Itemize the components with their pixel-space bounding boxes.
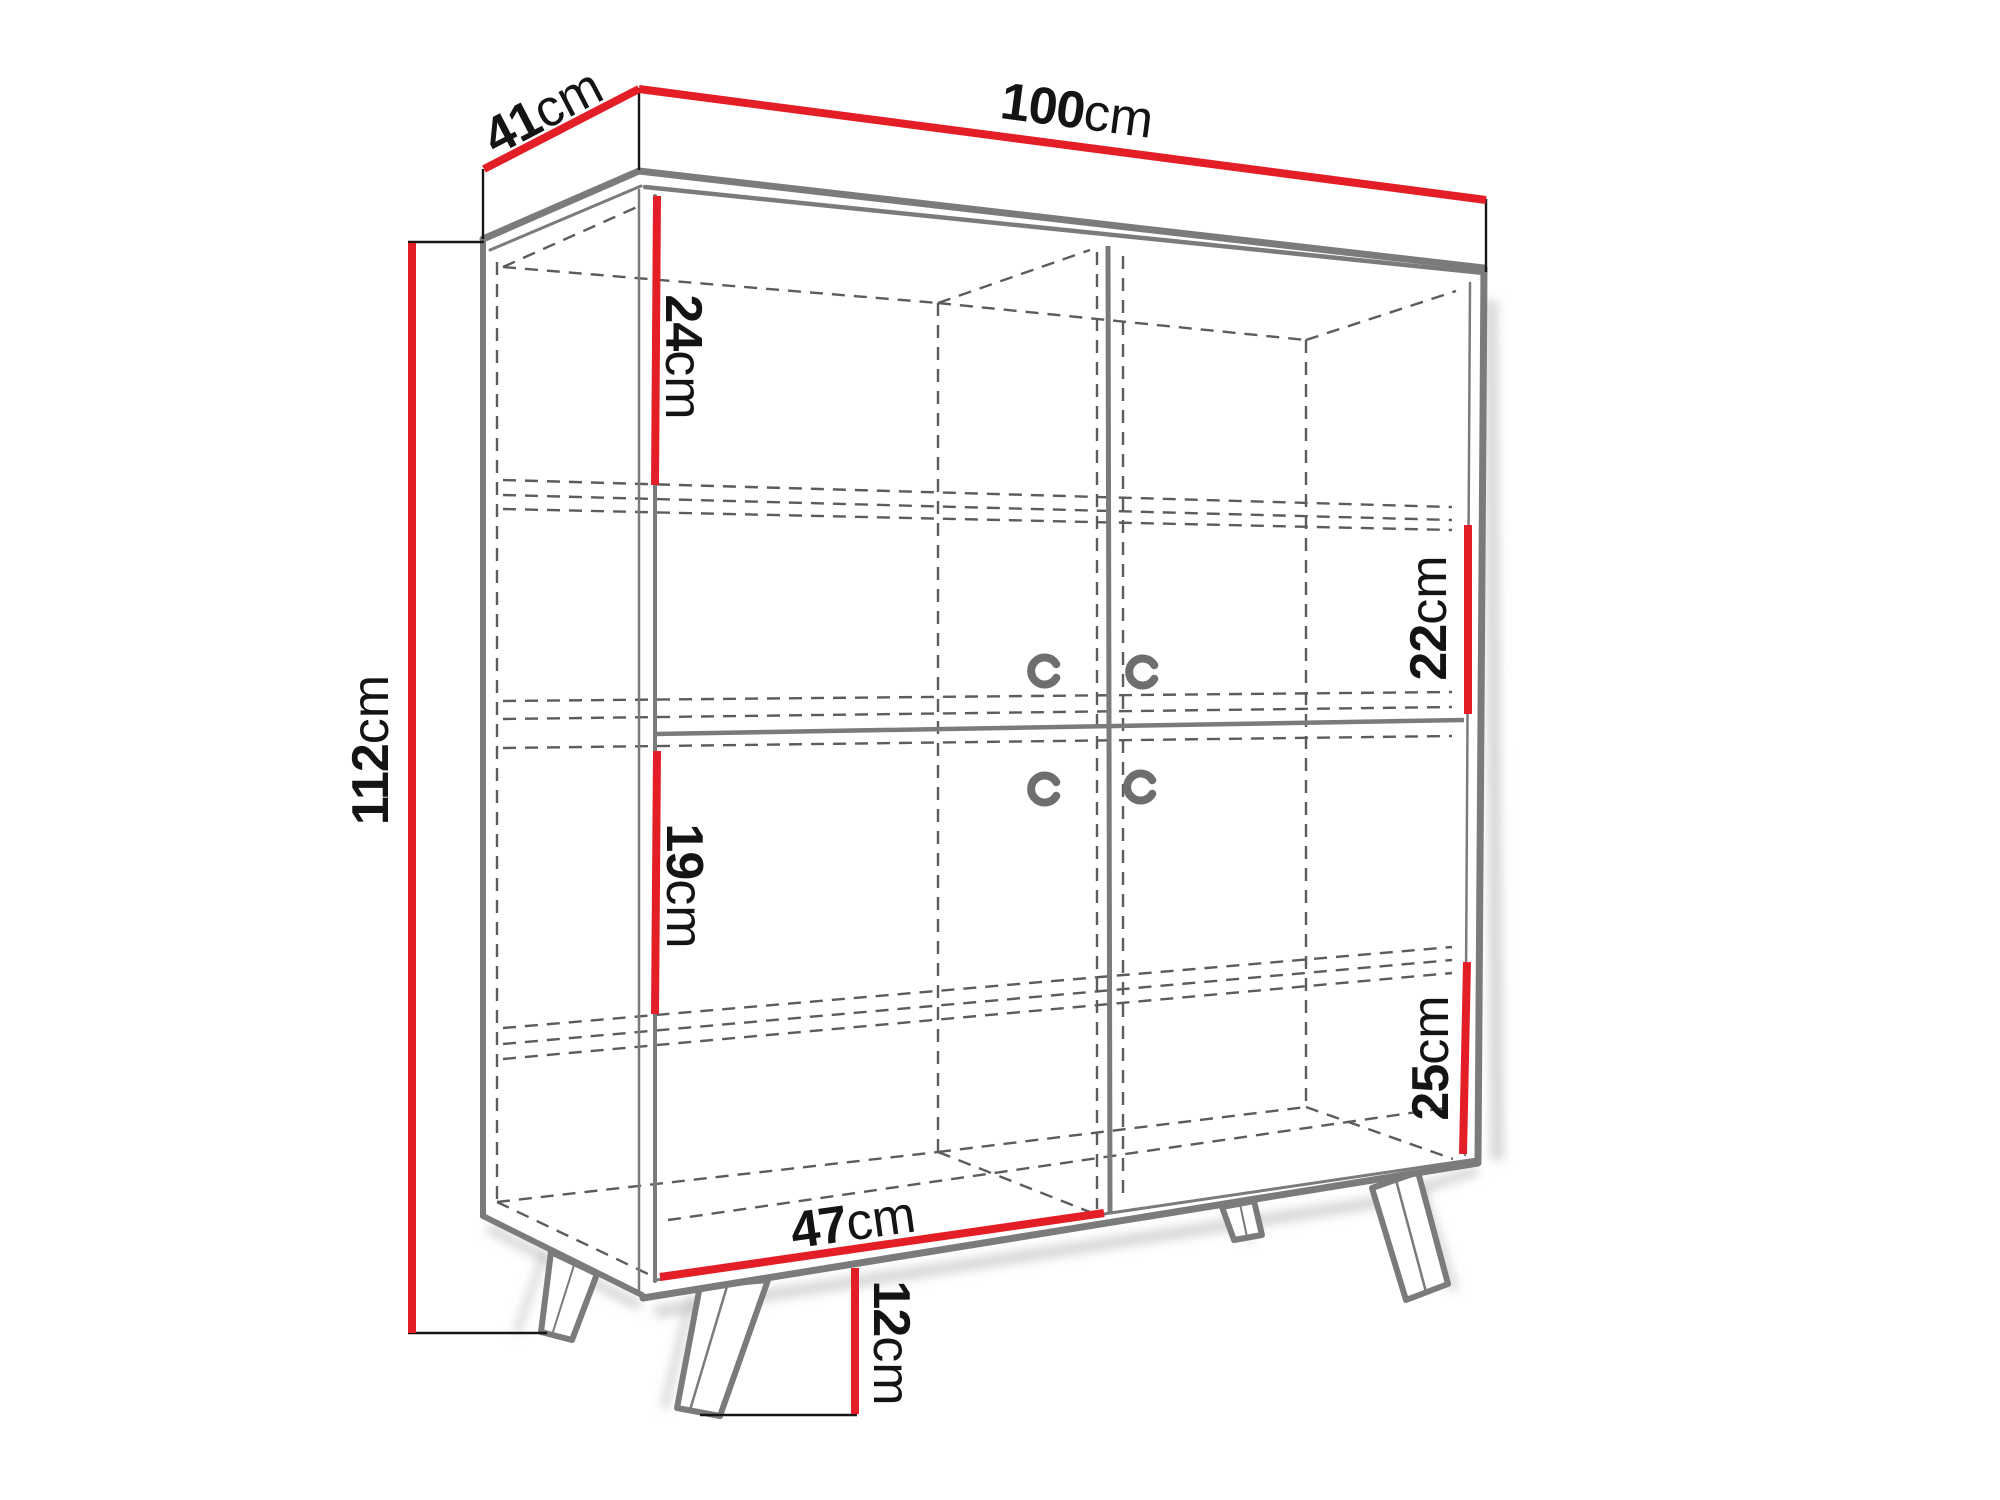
- cabinet-diagram-canvas: 41cm 100cm 112cm 24cm 22cm 19cm 25cm 47c…: [0, 0, 2000, 1500]
- center-divider: [1108, 246, 1110, 1212]
- dimension-value: 100: [997, 72, 1088, 140]
- top-left-compartment-label: 24cm: [654, 294, 712, 419]
- dimension-unit: cm: [1402, 995, 1460, 1064]
- dimension-value: 47: [787, 1195, 850, 1260]
- dimension-unit: cm: [342, 675, 400, 744]
- dimension-value: 112: [342, 744, 400, 825]
- dimension-unit: cm: [654, 350, 712, 419]
- cabinet-body: [483, 171, 1484, 1298]
- dimension-value: 24: [654, 294, 712, 351]
- height-dimension-label: 112cm: [342, 675, 400, 825]
- dimension-unit: cm: [862, 1336, 920, 1405]
- leg-height-label: 12cm: [862, 1280, 920, 1405]
- lower-right-compartment-label: 25cm: [1402, 995, 1460, 1120]
- furniture-dimension-diagram: 41cm 100cm 112cm 24cm 22cm 19cm 25cm 47c…: [0, 0, 2000, 1500]
- dimension-unit: cm: [1400, 555, 1458, 624]
- middle-left-compartment-label: 19cm: [655, 823, 713, 948]
- depth-dimension-label: 41cm: [474, 57, 612, 166]
- dimension-unit: cm: [842, 1186, 919, 1253]
- dimension-unit: cm: [655, 879, 713, 948]
- dimension-value: 19: [655, 823, 713, 879]
- dimension-value: 12: [862, 1280, 920, 1336]
- dimension-unit: cm: [1080, 83, 1156, 150]
- lower-right-compartment-line: [1463, 962, 1467, 1154]
- dimension-value: 25: [1402, 1065, 1460, 1121]
- upper-right-compartment-label: 22cm: [1400, 555, 1458, 680]
- dimension-value: 22: [1400, 625, 1458, 681]
